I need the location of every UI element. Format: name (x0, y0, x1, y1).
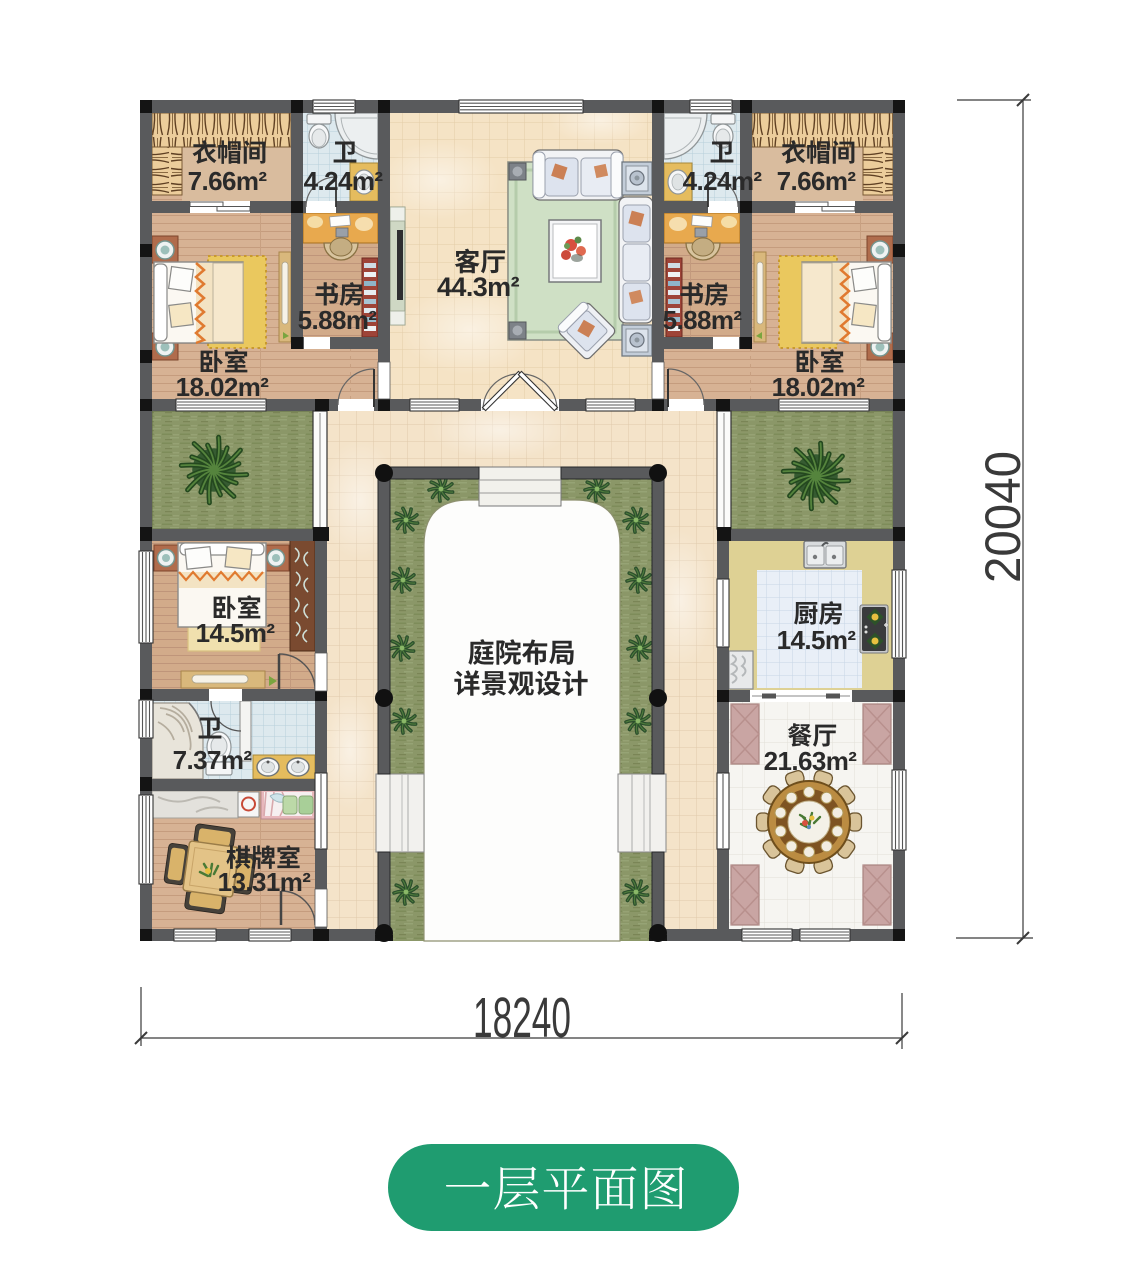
svg-text:7.66m²: 7.66m² (777, 166, 857, 196)
svg-text:5.88m²: 5.88m² (298, 305, 378, 335)
svg-text:14.5m²: 14.5m² (196, 618, 276, 648)
svg-text:18.02m²: 18.02m² (772, 372, 866, 402)
svg-text:18.02m²: 18.02m² (176, 372, 270, 402)
svg-text:7.37m²: 7.37m² (173, 745, 253, 775)
svg-text:20040: 20040 (975, 451, 1031, 583)
svg-text:4.24m²: 4.24m² (683, 166, 763, 196)
svg-text:13.31m²: 13.31m² (218, 867, 312, 897)
svg-text:21.63m²: 21.63m² (764, 746, 858, 776)
svg-text:18240: 18240 (473, 986, 571, 1050)
svg-text:4.24m²: 4.24m² (304, 166, 384, 196)
svg-text:7.66m²: 7.66m² (188, 166, 268, 196)
svg-text:5.88m²: 5.88m² (663, 305, 743, 335)
svg-text:14.5m²: 14.5m² (777, 625, 857, 655)
svg-text:44.3m²: 44.3m² (437, 272, 520, 302)
